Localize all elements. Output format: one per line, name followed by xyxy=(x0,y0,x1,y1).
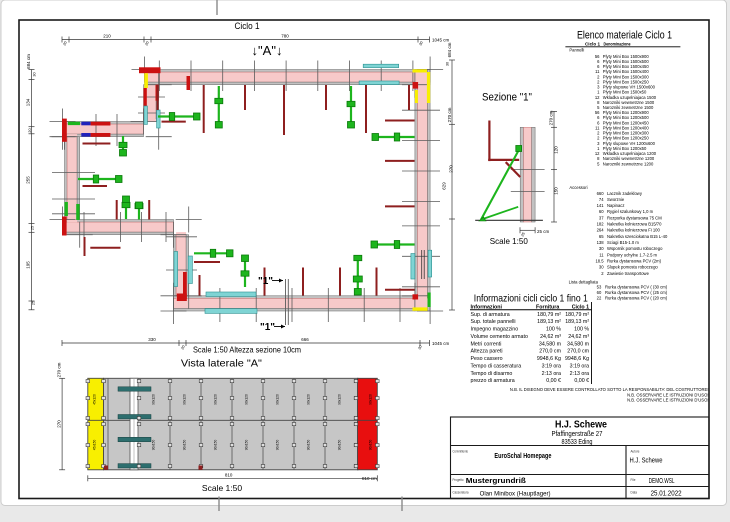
svg-text:34,580 m: 34,580 m xyxy=(567,341,590,347)
svg-text:25.01.2022: 25.01.2022 xyxy=(651,490,682,497)
svg-text:684 cm: 684 cm xyxy=(447,42,452,57)
svg-text:270 cm: 270 cm xyxy=(549,110,554,125)
svg-text:60: 60 xyxy=(597,290,602,295)
svg-text:65: 65 xyxy=(599,234,604,239)
svg-text:30: 30 xyxy=(599,265,604,270)
svg-text:18.5: 18.5 xyxy=(595,259,604,264)
svg-text:25: 25 xyxy=(32,301,36,305)
svg-text:Accessori: Accessori xyxy=(569,185,587,190)
svg-text:180,79 m²: 180,79 m² xyxy=(565,312,589,318)
svg-text:810: 810 xyxy=(225,473,233,478)
svg-text:255: 255 xyxy=(26,176,31,184)
svg-text:Nakretka kolnierzowa B15/70: Nakretka kolnierzowa B15/70 xyxy=(607,222,662,227)
svg-text:3:19 ora: 3:19 ora xyxy=(570,363,589,369)
svg-text:Narozniki zewnetrzne 1200: Narozniki zewnetrzne 1200 xyxy=(603,161,654,166)
svg-text:Committente: Committente xyxy=(453,450,469,454)
svg-text:138: 138 xyxy=(597,240,605,245)
svg-text:141: 141 xyxy=(597,203,605,208)
svg-text:11: 11 xyxy=(599,252,604,257)
svg-text:Wspornik pomostu roboczego: Wspornik pomostu roboczego xyxy=(607,246,663,251)
svg-text:195: 195 xyxy=(26,261,31,269)
svg-text:182: 182 xyxy=(597,222,605,227)
svg-text:Sup. totale pannelli: Sup. totale pannelli xyxy=(471,319,516,325)
svg-text:24,62 m³: 24,62 m³ xyxy=(568,334,589,340)
svg-text:Sworznie: Sworznie xyxy=(607,197,625,202)
svg-text:53: 53 xyxy=(597,284,602,289)
svg-text:270,0 cm: 270,0 cm xyxy=(539,349,561,355)
svg-text:83533 Eding: 83533 Eding xyxy=(562,437,593,446)
svg-text:90x150: 90x150 xyxy=(183,440,187,451)
svg-text:2:13 ora: 2:13 ora xyxy=(570,371,589,377)
svg-text:Sup. di armatura: Sup. di armatura xyxy=(471,312,510,318)
svg-text:Data: Data xyxy=(631,491,638,495)
svg-text:150: 150 xyxy=(554,187,559,195)
svg-text:180,79 m²: 180,79 m² xyxy=(537,312,561,318)
svg-text:Podpory uchylne 1.7-2.5 m: Podpory uchylne 1.7-2.5 m xyxy=(607,252,658,257)
svg-text:20: 20 xyxy=(28,128,32,132)
svg-text:90x150: 90x150 xyxy=(245,440,249,451)
svg-text:Zawiesie transportowe: Zawiesie transportowe xyxy=(607,271,650,276)
svg-text:Slupek pomostu roboczego: Slupek pomostu roboczego xyxy=(607,265,658,270)
svg-text:45x150: 45x150 xyxy=(93,440,97,451)
svg-text:780: 780 xyxy=(281,34,289,39)
svg-text:90x150: 90x150 xyxy=(152,440,156,451)
svg-text:270,0 cm: 270,0 cm xyxy=(567,349,589,355)
svg-text:210: 210 xyxy=(103,34,111,39)
svg-text:Denominazione: Denominazione xyxy=(604,41,632,46)
svg-text:Tempo di casseratura: Tempo di casseratura xyxy=(471,363,522,369)
svg-text:Peso cassero: Peso cassero xyxy=(471,356,503,362)
svg-text:Scale 1:50: Scale 1:50 xyxy=(202,483,242,493)
svg-text:Olan Minibox (Hauptlager): Olan Minibox (Hauptlager) xyxy=(480,490,551,497)
svg-text:Ciclo 1: Ciclo 1 xyxy=(585,41,601,46)
svg-text:Sezione "1": Sezione "1" xyxy=(482,92,532,104)
svg-text:264: 264 xyxy=(597,228,605,233)
svg-text:90x120: 90x120 xyxy=(152,394,156,405)
svg-text:90x120: 90x120 xyxy=(183,394,187,405)
svg-text:N.B. IL DISEGNO DEVE ESSERE CO: N.B. IL DISEGNO DEVE ESSERE CONTROLLATO … xyxy=(510,387,709,392)
svg-text:270 cm: 270 cm xyxy=(447,107,452,122)
svg-text:25 cm: 25 cm xyxy=(537,229,550,234)
svg-text:90x120: 90x120 xyxy=(276,394,280,405)
svg-text:↓"A"↓: ↓"A"↓ xyxy=(252,43,283,58)
svg-text:1045 cm: 1045 cm xyxy=(432,341,450,346)
svg-text:Scale 1:50: Scale 1:50 xyxy=(490,236,528,246)
svg-text:"1": "1" xyxy=(258,276,273,287)
svg-text:File: File xyxy=(631,478,636,482)
svg-text:Impegno magazzino: Impegno magazzino xyxy=(471,327,519,333)
svg-text:30: 30 xyxy=(446,62,450,66)
svg-text:22: 22 xyxy=(597,296,602,301)
svg-text:Rygiel szalunkowy 1,0 m: Rygiel szalunkowy 1,0 m xyxy=(607,209,654,214)
svg-text:Scale 1:50 Altezza sezione 1: Scale 1:50 Altezza sezione 10cm xyxy=(193,344,301,354)
svg-text:9948,6 Kg: 9948,6 Kg xyxy=(537,356,561,362)
svg-text:Metri correnti: Metri correnti xyxy=(471,341,502,347)
svg-text:666: 666 xyxy=(301,337,309,342)
svg-text:100 %: 100 % xyxy=(546,327,561,333)
svg-text:0,00 €: 0,00 € xyxy=(574,378,589,384)
svg-text:Altezza pareti: Altezza pareti xyxy=(471,349,503,355)
svg-text:660: 660 xyxy=(597,191,605,196)
svg-text:Rurka dystansowa PCV ( (30 cm): Rurka dystansowa PCV ( (30 cm) xyxy=(605,284,668,289)
svg-text:Casseratura: Casseratura xyxy=(453,491,469,495)
svg-text:3:19 ora: 3:19 ora xyxy=(542,363,561,369)
svg-text:90x120: 90x120 xyxy=(214,394,218,405)
svg-text:Nakretka szesciokatna B15 L-40: Nakretka szesciokatna B15 L-40 xyxy=(607,234,668,239)
svg-text:Tempo di disarmo: Tempo di disarmo xyxy=(471,371,513,377)
svg-text:Rurka dystansowa PCV ( (20 cm): Rurka dystansowa PCV ( (20 cm) xyxy=(605,296,668,301)
svg-text:Rurka dystansowa PCV ( (25 cm): Rurka dystansowa PCV ( (25 cm) xyxy=(605,290,668,295)
svg-text:24,62 m³: 24,62 m³ xyxy=(540,334,561,340)
svg-text:270 cm: 270 cm xyxy=(57,362,62,377)
svg-text:90x150: 90x150 xyxy=(338,440,342,451)
svg-text:EuroSchal Homepage: EuroSchal Homepage xyxy=(494,453,551,460)
svg-text:2:13 ora: 2:13 ora xyxy=(542,371,561,377)
svg-text:90x120: 90x120 xyxy=(338,394,342,405)
svg-text:Rurka dystansowa PCV (2m): Rurka dystansowa PCV (2m) xyxy=(607,259,662,264)
svg-text:Volume cemento armato: Volume cemento armato xyxy=(471,334,528,340)
svg-text:25: 25 xyxy=(31,226,35,230)
svg-text:prezzo di armatura: prezzo di armatura xyxy=(471,378,515,384)
svg-text:45x120: 45x120 xyxy=(93,394,97,405)
svg-text:34,580 m: 34,580 m xyxy=(539,341,562,347)
svg-text:Vista laterale "A": Vista laterale "A" xyxy=(181,358,262,370)
svg-text:74: 74 xyxy=(599,197,604,202)
svg-text:37: 37 xyxy=(599,215,604,220)
svg-text:100 %: 100 % xyxy=(574,327,589,333)
svg-text:90x150: 90x150 xyxy=(307,440,311,451)
svg-text:Sciagi B15-1.0 m: Sciagi B15-1.0 m xyxy=(607,240,639,245)
svg-text:Informazioni cicli ciclo 1 fi: Informazioni cicli ciclo 1 fino 1 xyxy=(474,292,588,304)
svg-text:810 cm: 810 cm xyxy=(362,476,377,481)
svg-text:Napinacz: Napinacz xyxy=(607,203,624,208)
svg-text:30: 30 xyxy=(33,72,37,76)
svg-text:Progetto: Progetto xyxy=(453,478,464,482)
svg-text:1045 cm: 1045 cm xyxy=(432,38,450,43)
svg-text:90x150: 90x150 xyxy=(369,440,373,451)
svg-text:270: 270 xyxy=(449,165,454,173)
svg-text:60: 60 xyxy=(599,209,604,214)
svg-text:134: 134 xyxy=(26,98,31,106)
svg-text:Pannelli: Pannelli xyxy=(569,48,584,53)
svg-text:9948,6 Kg: 9948,6 Kg xyxy=(565,356,589,362)
svg-text:Rozporka dystansowa 75 CM: Rozporka dystansowa 75 CM xyxy=(607,215,662,220)
svg-text:Elenco materiale Ciclo 1: Elenco materiale Ciclo 1 xyxy=(577,30,672,42)
svg-text:Lista dettagliata: Lista dettagliata xyxy=(569,279,599,284)
svg-text:90x120: 90x120 xyxy=(245,394,249,405)
svg-text:684 cm: 684 cm xyxy=(26,54,31,69)
svg-text:90x120: 90x120 xyxy=(307,394,311,405)
svg-text:Mustergrundriß: Mustergrundriß xyxy=(466,478,527,485)
svg-text:Autore: Autore xyxy=(631,450,640,454)
svg-text:270: 270 xyxy=(57,420,62,428)
svg-text:DEMO.WSL: DEMO.WSL xyxy=(649,478,675,485)
svg-text:Nakretka kolnierzowa Fi 100: Nakretka kolnierzowa Fi 100 xyxy=(607,228,661,233)
svg-text:330: 330 xyxy=(148,337,156,342)
svg-text:30: 30 xyxy=(599,246,604,251)
svg-text:90x120: 90x120 xyxy=(369,394,373,405)
svg-text:189,13 m²: 189,13 m² xyxy=(565,319,589,325)
svg-text:90x150: 90x150 xyxy=(276,440,280,451)
svg-text:120: 120 xyxy=(554,146,559,154)
svg-text:"1": "1" xyxy=(260,322,275,333)
svg-text:189,13 m²: 189,13 m² xyxy=(537,319,561,325)
svg-text:629: 629 xyxy=(442,182,447,190)
svg-text:Ciclo 1: Ciclo 1 xyxy=(235,21,260,32)
svg-text:H.J. Schewe: H.J. Schewe xyxy=(630,458,663,465)
svg-text:Lacznik zadeklowy: Lacznik zadeklowy xyxy=(607,191,643,196)
svg-text:90x150: 90x150 xyxy=(214,440,218,451)
svg-text:0,00 €: 0,00 € xyxy=(546,378,561,384)
svg-text:N.B. OSSERVARE LE ISTRUZIONI D: N.B. OSSERVARE LE ISTRUZIONI D'USO! xyxy=(627,397,708,402)
